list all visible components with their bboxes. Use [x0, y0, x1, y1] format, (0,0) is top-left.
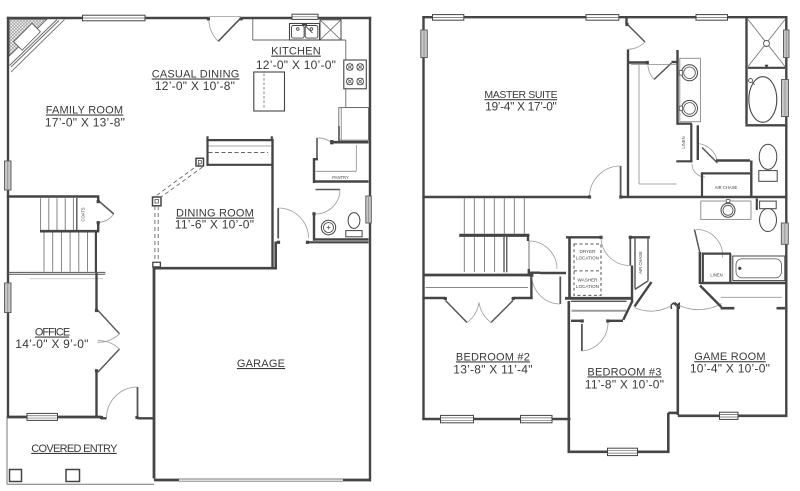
svg-text:11’-6" X 10’-0": 11’-6" X 10’-0" — [175, 218, 254, 232]
svg-text:LOCATION: LOCATION — [576, 284, 599, 289]
svg-text:COVERED ENTRY: COVERED ENTRY — [31, 443, 118, 455]
svg-text:14’-0" X 9’-0": 14’-0" X 9’-0" — [15, 337, 88, 351]
svg-text:LINEN: LINEN — [710, 273, 722, 278]
svg-text:DRYER: DRYER — [580, 249, 597, 254]
svg-text:11’-8" X 10’-0": 11’-8" X 10’-0" — [585, 377, 664, 391]
svg-text:13’-8" X 11’-4": 13’-8" X 11’-4" — [453, 363, 532, 377]
svg-text:AIR CHASE: AIR CHASE — [638, 251, 643, 274]
svg-text:COATS: COATS — [80, 207, 85, 221]
svg-text:19’-4" X 17’-0": 19’-4" X 17’-0" — [485, 99, 556, 113]
svg-text:GARAGE: GARAGE — [237, 358, 285, 370]
svg-text:17’-0" X 13’-8": 17’-0" X 13’-8" — [45, 115, 125, 129]
svg-text:AIR CHASE: AIR CHASE — [715, 185, 738, 190]
svg-text:LINEN: LINEN — [681, 136, 686, 148]
svg-text:KITCHEN: KITCHEN — [271, 46, 321, 58]
svg-text:WASHER: WASHER — [578, 278, 599, 283]
svg-text:PANTRY: PANTRY — [332, 175, 349, 180]
svg-text:12’-0" X 10’-8": 12’-0" X 10’-8" — [155, 79, 235, 93]
svg-text:10’-4" X 10’-0": 10’-4" X 10’-0" — [690, 362, 770, 376]
svg-text:LOCATION: LOCATION — [576, 256, 599, 261]
svg-text:12’-0" X 10’-0": 12’-0" X 10’-0" — [256, 58, 336, 72]
